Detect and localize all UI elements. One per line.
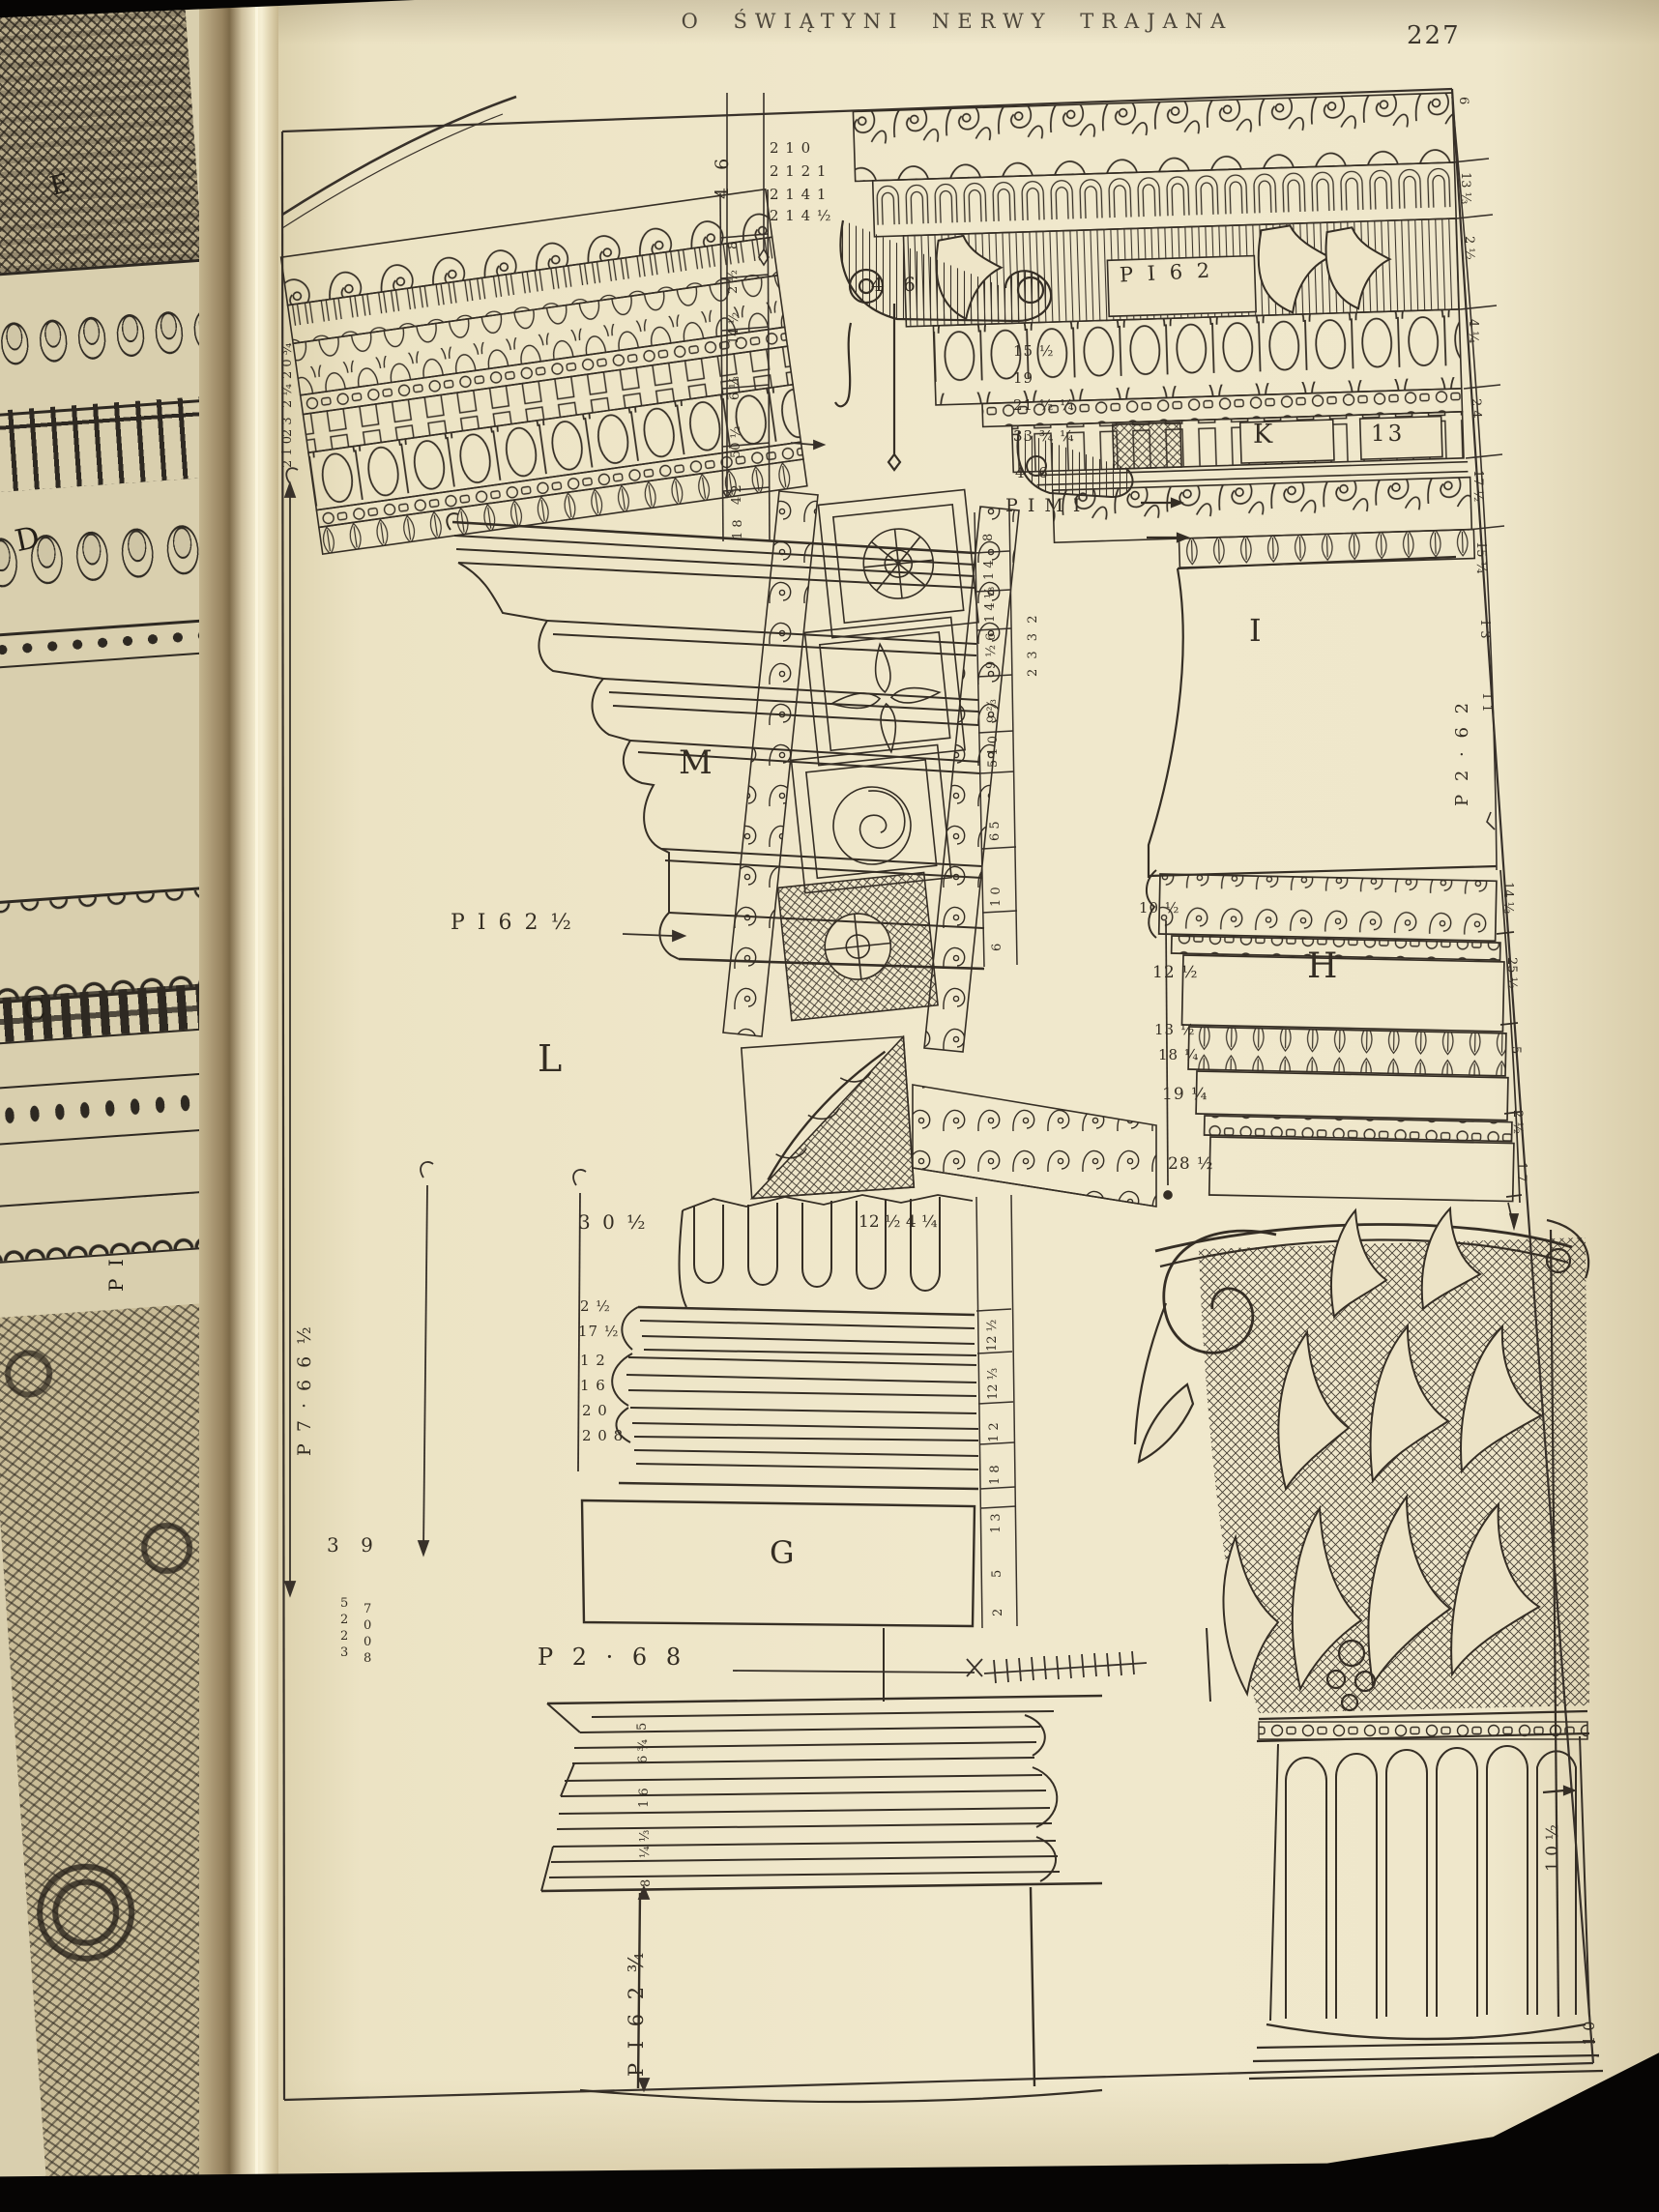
dim-p262: P 2 · 6 2	[1454, 699, 1471, 806]
dim-pi62-34: P I 6 2 ¾	[626, 1949, 647, 2077]
section-label-m: M	[679, 746, 713, 779]
measure: 2 1 4 ½	[770, 209, 831, 223]
measure: 5	[1509, 1046, 1522, 1054]
measure: 2 ½	[727, 270, 740, 294]
measure: 13 ⅓	[1459, 172, 1471, 204]
dimension-lines	[285, 441, 1147, 2090]
measure: 2 4	[1470, 398, 1482, 419]
measure: 0	[364, 1636, 371, 1648]
dim-46-horizontal: 4 6	[871, 275, 922, 294]
measure: 2 3 3 2	[1027, 613, 1039, 677]
dim-pi62-half: P I 6 2 ½	[451, 913, 574, 934]
measure: 10 ½	[1139, 901, 1179, 916]
measure: 7	[364, 1603, 371, 1615]
dim-p268: P 2 · 6 8	[538, 1645, 686, 1669]
measure: 2 1 0	[770, 141, 811, 156]
measure: 2 0	[582, 1404, 608, 1418]
measure: 1 3	[1478, 619, 1491, 639]
measure: 28 ½	[1168, 1156, 1214, 1173]
measure: 0	[364, 1619, 371, 1632]
measure: 1 2	[580, 1353, 606, 1368]
page-number: 227	[1407, 23, 1461, 48]
measure: 12 ½	[1152, 965, 1199, 981]
base-ruler	[976, 1195, 1017, 1628]
measure: 12 ⅓	[987, 1368, 1000, 1400]
measure: 18 ¼	[1158, 1048, 1199, 1062]
section-label-k: K	[1253, 422, 1272, 448]
measure: 13 ½	[1154, 1023, 1195, 1037]
measure: 5	[340, 1597, 348, 1610]
section-label-l: L	[538, 1040, 562, 1077]
measure: 2 1 0	[281, 436, 294, 468]
measure: 1 6	[580, 1379, 606, 1393]
dim-capital-10: 1 0 ½	[1545, 1824, 1561, 1872]
shaft-flutes	[1270, 1736, 1589, 2021]
measure: 17 ½	[578, 1324, 619, 1339]
measure: 12 ½	[986, 1320, 999, 1352]
measure: 2 ½	[580, 1299, 611, 1314]
measure: 1 8	[989, 1465, 1002, 1485]
coffer-4	[777, 872, 938, 1020]
measure: 14 ½	[728, 312, 741, 344]
measure: 8	[364, 1652, 371, 1665]
coffer-corner	[742, 1036, 914, 1198]
measure: 1 8	[732, 519, 744, 539]
measure: 19	[1013, 371, 1033, 386]
section-label-h: H	[1307, 949, 1337, 984]
left-page-label-c: C	[21, 994, 48, 1027]
corinthian-capital	[1135, 1208, 1603, 2079]
measure: 2 3	[281, 417, 294, 437]
dim-corner-10: 1 0	[1582, 2022, 1597, 2046]
measure: 2	[340, 1614, 348, 1626]
measure: 15 ½	[1013, 344, 1054, 359]
measure: 2 0 8	[582, 1429, 624, 1443]
measure: 2 ¼	[281, 384, 294, 408]
measure: 9 ½ 6	[985, 633, 998, 669]
page-header-title: O ŚWIĄTYNI NERWY TRAJANA	[619, 12, 1295, 32]
measure: 5	[636, 1723, 649, 1731]
measure: 1 4 ⅓	[984, 587, 997, 623]
measure: ¼ ⅓	[639, 1830, 652, 1858]
measure: 2 ½	[1511, 1110, 1524, 1134]
section-label-g: G	[770, 1537, 795, 1568]
measure: 5 1 0	[987, 736, 1000, 768]
measure: 8	[727, 242, 740, 249]
panel-number-13: 13	[1371, 423, 1405, 446]
dim-base-30: 3 0 ½	[578, 1212, 649, 1232]
measure: 17 ½	[1471, 470, 1484, 502]
book-photo: O ŚWIĄTYNI NERWY TRAJANA 227 E D C P I M…	[0, 0, 1659, 2212]
measure: 2	[992, 1609, 1004, 1616]
plate-engraving	[0, 0, 1659, 2212]
measure: 6 ⅓	[729, 376, 742, 400]
dim-p766-half: P 7 · 6 6 ½	[296, 1324, 314, 1456]
measure: 2 1 4 1	[770, 188, 827, 202]
measure: 4 ¼	[1467, 319, 1479, 343]
column-base	[582, 1195, 1210, 1702]
left-page-label-pi: P I	[106, 1256, 126, 1292]
dim-39: 3 9	[327, 1535, 381, 1555]
measure: 2	[340, 1630, 348, 1643]
dim-flute-top: 12 ½ 4 ¼	[859, 1214, 938, 1231]
measure: 9 ⅔	[986, 699, 999, 723]
measure: 33 ¾ ¼	[1013, 429, 1075, 444]
measure: 6	[1457, 97, 1470, 104]
measure: 8	[982, 534, 995, 541]
measure: 3	[340, 1646, 348, 1659]
measure: 14 ⅓	[1501, 882, 1514, 914]
measure: 50 ½	[730, 426, 742, 458]
measure: 2 ½	[1463, 236, 1475, 260]
measure: 19 ¼	[1162, 1087, 1208, 1103]
measure: 6	[991, 944, 1004, 951]
measure: 8	[640, 1879, 653, 1887]
section-label-i: I	[1249, 615, 1262, 646]
dim-46-vertical: 4 6	[713, 153, 732, 199]
measure: 2 1 2 1	[770, 164, 827, 179]
measure: 1 6	[638, 1788, 651, 1808]
measure: 21 ½ ¼	[1013, 398, 1075, 413]
dim-pimi: P I M I	[1005, 497, 1082, 515]
measure: 6 ¾	[637, 1739, 650, 1763]
h-architrave	[1147, 870, 1522, 1228]
measure: 5	[991, 1570, 1004, 1578]
measure: 4 2	[731, 484, 743, 505]
measure: 6 5	[989, 821, 1002, 841]
dim-pi62: P I 6 2	[1120, 260, 1214, 285]
measure: 1 2	[988, 1422, 1001, 1442]
scale-bar	[967, 1651, 1147, 1683]
measure: 25 ½	[1505, 957, 1518, 989]
measure: 15 ¼	[1474, 541, 1487, 573]
coffer-strip	[723, 489, 1156, 1207]
measure: 1 0	[990, 887, 1003, 907]
measure: 1 4	[983, 560, 996, 580]
measure: 2 0 ¾	[281, 343, 294, 379]
measure: 1 3	[990, 1513, 1003, 1533]
measure: 4 6	[1015, 466, 1053, 480]
measure: 1 7	[1515, 1162, 1528, 1182]
measure: 1 1	[1480, 692, 1493, 713]
